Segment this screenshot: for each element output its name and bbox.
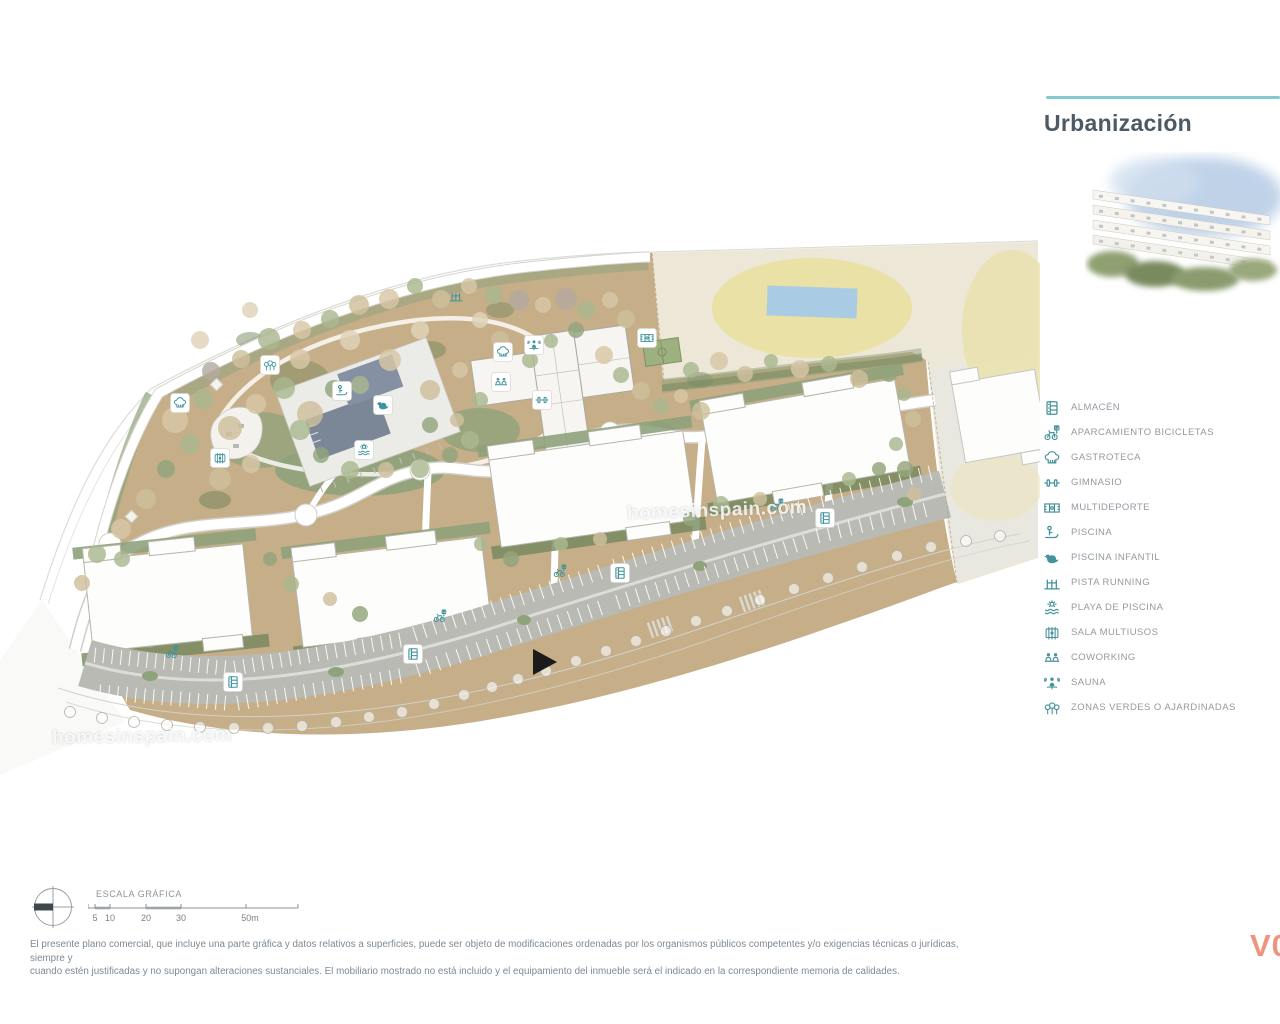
map-icon-almacen [816,509,835,528]
legend-item-piscina: PISCINA [1043,520,1280,545]
accent-line [1046,96,1280,99]
legend-item-coworking: COWORKING [1043,645,1280,670]
map-icon-zonas-verdes [261,356,280,375]
scale-ruler [88,899,318,911]
almacen-icon [1043,399,1061,417]
legend-label: COWORKING [1071,652,1136,663]
legend-item-zonas-verdes: ZONAS VERDES O AJARDINADAS [1043,695,1280,720]
dumbbell-icon [1043,474,1061,492]
coworking-people-icon [1043,649,1061,667]
legend-label: APARCAMIENTO BICICLETAS [1071,427,1214,438]
map-icon-almacen [404,645,423,664]
north-compass-icon [30,884,76,930]
map-icon-sala-multiusos [211,449,230,468]
scale-tick: 5 [92,913,97,923]
disclaimer-line-2: cuando estén justificadas y no supongan … [30,965,978,979]
legend-label: PISCINA INFANTIL [1071,552,1160,563]
legend-label: GASTROTECA [1071,452,1141,463]
duck-float-icon [1043,549,1061,567]
legend-label: ALMACÉN [1071,402,1120,413]
watermark: homesinspain.com [52,724,232,749]
legend-label: ZONAS VERDES O AJARDINADAS [1071,702,1236,713]
trees-icon [1043,699,1061,717]
sports-court-icon [1043,499,1061,517]
map-icon-gastroteca [494,343,513,362]
legend-label: SALA MULTIUSOS [1071,627,1158,638]
legend-label: PLAYA DE PISCINA [1071,602,1163,613]
scale-bar: 5 10 20 30 50m [88,899,318,929]
map-icon-almacen [611,564,630,583]
legend-item-gastroteca: GASTROTECA [1043,445,1280,470]
legend-label: PISTA RUNNING [1071,577,1150,588]
bicycle-parking-icon [1043,424,1061,442]
disclaimer-line-1: El presente plano comercial, que incluye… [30,938,978,965]
legend-label: MULTIDEPORTE [1071,502,1150,513]
scale-tick: 20 [141,913,151,923]
map-icon-multideporte [638,329,657,348]
version-label: V0 [1250,928,1280,964]
sun-waves-icon [1043,599,1061,617]
foosball-table-icon [1043,624,1061,642]
legend-item-bicicletas: APARCAMIENTO BICICLETAS [1043,420,1280,445]
page-title: Urbanización [1044,110,1192,137]
map-icon-almacen [224,673,243,692]
pool-icon [1043,524,1061,542]
running-track-icon [1043,574,1061,592]
map-icon-piscina [333,382,352,401]
map-icon-gimnasio [533,391,552,410]
building-rendering-artwork [1085,152,1280,297]
scale-tick: 10 [105,913,115,923]
legend-label: SAUNA [1071,677,1106,688]
neighbor-pool [767,285,858,318]
legend-item-sauna: SAUNA [1043,670,1280,695]
map-icon-sauna [525,336,544,355]
legend-item-piscina-infantil: PISCINA INFANTIL [1043,545,1280,570]
legend-item-playa-piscina: PLAYA DE PISCINA [1043,595,1280,620]
scale-tick: 50m [241,913,259,923]
legend-label: GIMNASIO [1071,477,1122,488]
map-icon-playa-piscina [355,441,374,460]
legend-label: PISCINA [1071,527,1112,538]
legend-item-sala-multiusos: SALA MULTIUSOS [1043,620,1280,645]
map-icon-piscina-infantil [374,396,393,415]
map-icon-gastroteca [171,394,190,413]
scale-tick: 30 [176,913,186,923]
legend: ALMACÉN APARCAMIENTO BICICLETAS GASTROTE… [1043,395,1280,720]
map-icon-coworking [492,373,511,392]
sauna-person-icon [1043,674,1061,692]
chef-hat-icon [1043,449,1061,467]
legend-item-gimnasio: GIMNASIO [1043,470,1280,495]
site-plan [0,230,1040,775]
legend-item-almacen: ALMACÉN [1043,395,1280,420]
building-rendering-image [1085,152,1280,297]
legend-item-pista-running: PISTA RUNNING [1043,570,1280,595]
scale-bar-label: ESCALA GRÁFICA [96,889,182,899]
legend-item-multideporte: MULTIDEPORTE [1043,495,1280,520]
disclaimer: El presente plano comercial, que incluye… [30,938,978,979]
